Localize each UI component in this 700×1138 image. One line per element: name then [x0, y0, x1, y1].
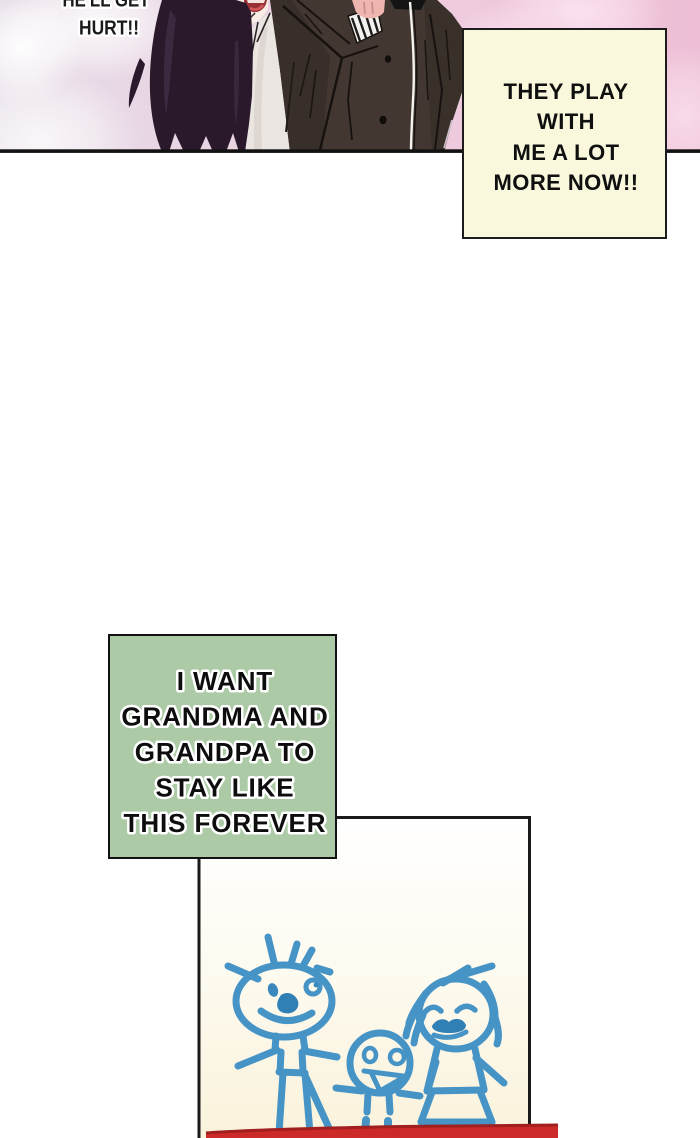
svg-text:I WANT: I WANT	[177, 666, 273, 696]
svg-text:GRANDPA TO: GRANDPA TO	[135, 737, 315, 767]
svg-text:HE'LL GET: HE'LL GET	[63, 0, 150, 12]
svg-text:HURT!!: HURT!!	[79, 18, 139, 40]
svg-text:GRANDMA AND: GRANDMA AND	[121, 702, 328, 732]
svg-text:THIS FOREVER: THIS FOREVER	[124, 808, 327, 838]
svg-text:STAY LIKE: STAY LIKE	[155, 773, 294, 803]
